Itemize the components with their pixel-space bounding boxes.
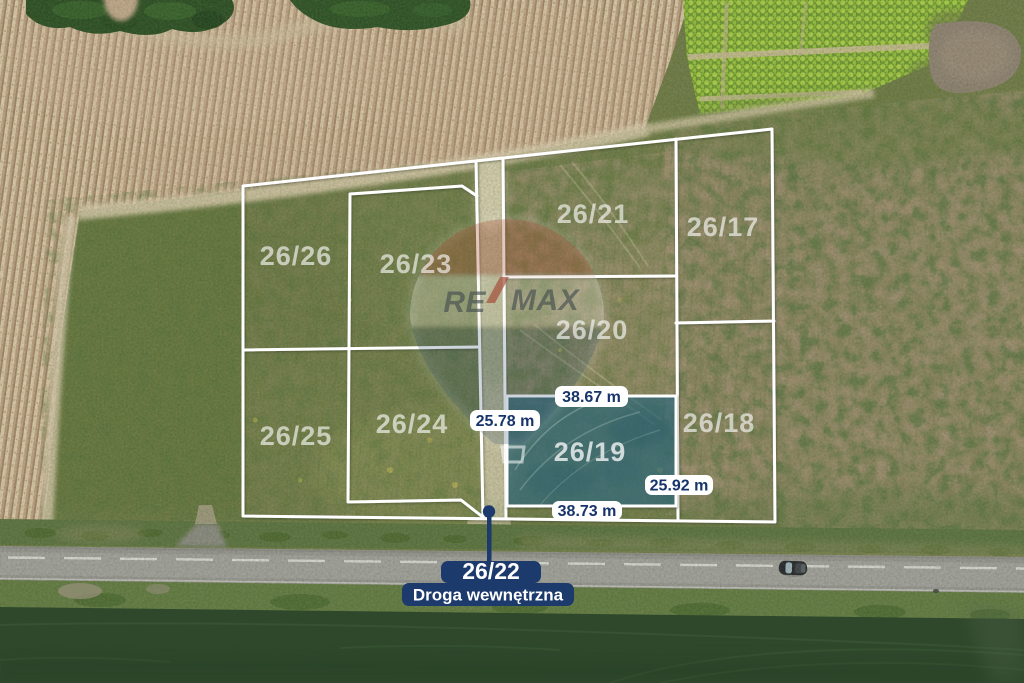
svg-text:Droga wewnętrzna: Droga wewnętrzna	[413, 586, 564, 605]
svg-text:26/24: 26/24	[376, 409, 449, 439]
svg-text:26/18: 26/18	[683, 408, 756, 438]
svg-text:26/21: 26/21	[557, 199, 630, 229]
svg-text:38.67 m: 38.67 m	[562, 389, 621, 406]
svg-text:38.73 m: 38.73 m	[558, 503, 617, 520]
svg-text:26/25: 26/25	[260, 421, 333, 451]
svg-text:RE: RE	[443, 286, 486, 319]
svg-text:26/22: 26/22	[462, 558, 520, 584]
svg-text:26/23: 26/23	[380, 249, 453, 279]
svg-text:25.78 m: 25.78 m	[476, 413, 535, 430]
svg-text:26/26: 26/26	[260, 241, 333, 271]
svg-text:26/20: 26/20	[556, 315, 629, 345]
svg-text:MAX: MAX	[511, 284, 581, 317]
svg-text:25.92 m: 25.92 m	[650, 478, 709, 495]
svg-text:26/19: 26/19	[554, 437, 627, 467]
svg-text:26/17: 26/17	[687, 212, 760, 242]
